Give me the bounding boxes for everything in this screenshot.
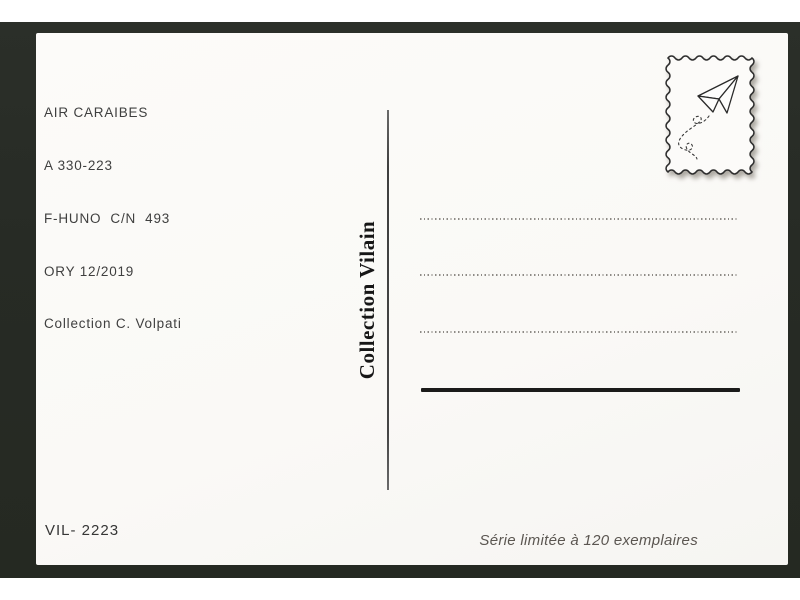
address-dotted-line-1 <box>420 218 738 220</box>
caption-airline: AIR CARAIBES <box>44 104 182 122</box>
caption-registration: F-HUNO C/N 493 <box>44 210 182 228</box>
stamp-box <box>662 52 758 178</box>
caption-block: AIR CARAIBES A 330-223 F-HUNO C/N 493 OR… <box>44 69 182 368</box>
address-dotted-line-2 <box>420 274 738 276</box>
postcard-photo-frame: AIR CARAIBES A 330-223 F-HUNO C/N 493 OR… <box>0 22 800 578</box>
address-solid-line <box>421 388 740 392</box>
publisher-vertical-label: Collection Vilain <box>355 180 385 420</box>
caption-photographer: Collection C. Volpati <box>44 315 182 333</box>
stamp-graphic <box>662 52 758 178</box>
scan-page: AIR CARAIBES A 330-223 F-HUNO C/N 493 OR… <box>0 0 800 600</box>
edition-note: Série limitée à 120 exemplaires <box>479 532 698 549</box>
vertical-divider-line <box>387 110 389 490</box>
catalog-number: VIL- 2223 <box>45 522 119 539</box>
caption-aircraft-type: A 330-223 <box>44 157 182 175</box>
stamp-wavy-border <box>666 56 754 174</box>
caption-location-date: ORY 12/2019 <box>44 263 182 281</box>
postcard-back: AIR CARAIBES A 330-223 F-HUNO C/N 493 OR… <box>36 33 788 565</box>
address-dotted-line-3 <box>420 331 738 333</box>
